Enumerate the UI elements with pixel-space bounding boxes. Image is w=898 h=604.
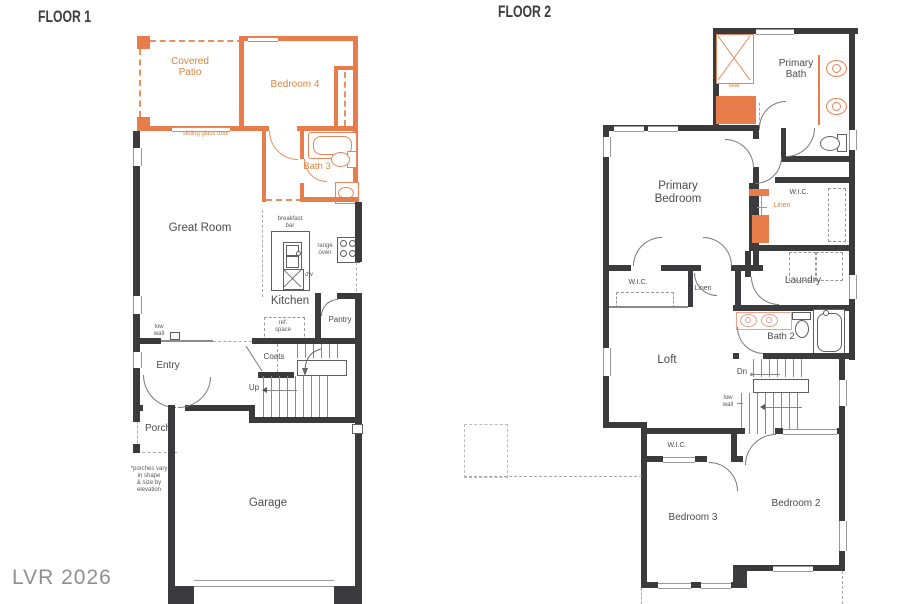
up-arrow-icon bbox=[267, 390, 297, 391]
window-icon bbox=[133, 352, 142, 368]
window-icon bbox=[839, 521, 847, 551]
wall bbox=[733, 353, 739, 359]
dishwasher-label: dw bbox=[301, 272, 317, 279]
low-wall-icon bbox=[170, 332, 180, 340]
washer-icon bbox=[789, 252, 816, 281]
low-wall-icon bbox=[737, 403, 743, 404]
burner-icon bbox=[340, 250, 347, 257]
door-arc bbox=[737, 327, 764, 354]
entry-label: Entry bbox=[146, 360, 190, 371]
faucet-icon bbox=[296, 251, 301, 256]
wall bbox=[603, 125, 609, 428]
window-icon bbox=[603, 137, 611, 157]
front-door-arc bbox=[143, 375, 176, 408]
closet-shelf-dashed bbox=[828, 188, 846, 242]
garage-service-door bbox=[352, 424, 363, 434]
opening-dashed bbox=[213, 341, 252, 342]
roof-outline-dashed bbox=[464, 424, 508, 478]
wic-hall-label: W.I.C. bbox=[618, 279, 658, 287]
stairs-treads bbox=[741, 393, 805, 434]
floor2-title: FLOOR 2 bbox=[498, 2, 551, 22]
closet-wall bbox=[334, 66, 338, 130]
door-arc bbox=[321, 299, 338, 316]
window-icon bbox=[648, 126, 678, 132]
bedroom3-label: Bedroom 3 bbox=[661, 512, 725, 523]
patio-dashed-wall bbox=[139, 49, 141, 117]
range-oven-label: range oven bbox=[313, 243, 337, 257]
wall bbox=[737, 456, 743, 462]
low-wall bbox=[161, 340, 213, 342]
garage-label: Garage bbox=[240, 497, 296, 510]
opening-dashed bbox=[356, 262, 357, 297]
wall bbox=[641, 428, 647, 588]
sink-icon bbox=[832, 64, 841, 73]
wic-primary-label: W.I.C. bbox=[778, 189, 820, 197]
breakfast-bar-label: breakfast bar bbox=[264, 216, 316, 230]
door-arc bbox=[786, 128, 815, 157]
low-wall bbox=[609, 306, 688, 308]
closet-rod bbox=[344, 72, 346, 126]
stairs-treads bbox=[263, 376, 327, 417]
door-arc bbox=[745, 434, 776, 465]
door-arc bbox=[694, 273, 717, 296]
window-icon bbox=[133, 296, 142, 314]
bath2-label: Bath 2 bbox=[757, 332, 805, 342]
door-arc bbox=[178, 377, 211, 408]
linen-primary-label: Linen bbox=[764, 202, 800, 210]
stairs-treads bbox=[753, 359, 805, 377]
window-icon bbox=[658, 583, 691, 589]
primary-bath-label: Primary Bath bbox=[766, 58, 826, 80]
railing-low-wall bbox=[783, 429, 837, 435]
sink-icon bbox=[766, 317, 772, 323]
wall bbox=[334, 586, 362, 604]
shower-seat-label: seat bbox=[716, 83, 752, 90]
door-arc bbox=[269, 131, 298, 160]
opening-dashed bbox=[266, 199, 302, 201]
wall bbox=[775, 428, 783, 434]
wall bbox=[661, 265, 701, 271]
faucet-icon bbox=[823, 310, 829, 316]
linen-shelf-block bbox=[749, 189, 769, 196]
patio-post bbox=[137, 36, 150, 49]
shower-seat-block bbox=[716, 96, 756, 124]
wall bbox=[300, 131, 304, 159]
door-arc bbox=[703, 237, 732, 266]
vanity-counter bbox=[818, 55, 820, 125]
wall bbox=[603, 265, 631, 271]
watermark: LVR 2026 bbox=[12, 566, 112, 590]
sink-icon bbox=[745, 317, 751, 323]
wall bbox=[353, 36, 358, 202]
door-arc bbox=[633, 237, 662, 266]
wall bbox=[337, 293, 362, 299]
roof-outline-dashed bbox=[464, 476, 642, 477]
wall bbox=[641, 428, 745, 434]
closet-opening bbox=[663, 457, 695, 463]
wall bbox=[168, 405, 175, 596]
sliding-glass-door-label: sliding glass door bbox=[166, 131, 246, 138]
stairs-up-label: Up bbox=[246, 384, 262, 393]
wall bbox=[297, 126, 358, 131]
wall bbox=[239, 36, 244, 131]
ref-space-label: ref. space bbox=[266, 320, 300, 334]
toilet-icon bbox=[792, 312, 811, 320]
window-icon bbox=[614, 126, 644, 132]
porch-post bbox=[133, 411, 140, 422]
sink-icon bbox=[286, 256, 299, 268]
primary-bedroom-label: Primary Bedroom bbox=[638, 180, 718, 205]
covered-patio-label: Covered Patio bbox=[158, 56, 222, 78]
bedroom2-label: Bedroom 2 bbox=[763, 498, 829, 509]
shower-icon bbox=[716, 34, 754, 84]
floorplan-canvas: FLOOR 1 Covered Patio sliding glass door… bbox=[0, 0, 898, 604]
low-wall-label: low wall bbox=[717, 395, 739, 409]
window-icon bbox=[849, 130, 857, 150]
wall bbox=[641, 456, 663, 462]
dryer-icon bbox=[816, 252, 843, 281]
window-icon bbox=[756, 29, 794, 35]
wic-bedroom3-label: W.I.C. bbox=[655, 442, 699, 450]
stairs-arrow-icon bbox=[760, 404, 765, 410]
stairs-arrow-icon bbox=[766, 407, 802, 408]
tub-icon bbox=[817, 313, 842, 352]
kitchen-label: Kitchen bbox=[265, 295, 315, 308]
wall bbox=[745, 251, 751, 277]
door-arc bbox=[759, 101, 786, 128]
wall bbox=[185, 405, 252, 411]
low-wall-label: low wall bbox=[148, 324, 170, 338]
wall bbox=[753, 131, 759, 139]
roof-outline-dashed bbox=[641, 588, 642, 604]
wall bbox=[837, 428, 845, 434]
wall bbox=[252, 417, 362, 423]
wall bbox=[691, 582, 701, 588]
wall bbox=[355, 202, 362, 262]
window-icon bbox=[701, 583, 731, 589]
roof-outline-dashed bbox=[842, 571, 843, 604]
bedroom4-label: Bedroom 4 bbox=[255, 79, 335, 90]
open-boundary-dashed bbox=[262, 210, 263, 297]
stairs-railing bbox=[297, 360, 347, 376]
wall bbox=[731, 582, 745, 588]
wall bbox=[749, 245, 855, 251]
linen-shelf-block bbox=[761, 196, 762, 215]
door-arc bbox=[725, 139, 754, 168]
stairs-treads bbox=[297, 344, 345, 358]
toilet-icon bbox=[820, 136, 840, 151]
wall bbox=[775, 177, 855, 183]
stairs-dn-label: Dn bbox=[733, 368, 751, 377]
linen-shelf-block bbox=[752, 215, 769, 243]
pantry-label: Pantry bbox=[320, 316, 360, 325]
sink-icon bbox=[832, 102, 841, 111]
window-icon bbox=[773, 566, 813, 572]
loft-label: Loft bbox=[642, 354, 692, 367]
window-icon bbox=[248, 37, 278, 42]
garage-door-icon bbox=[194, 580, 334, 587]
great-room-label: Great Room bbox=[160, 222, 240, 235]
window-icon bbox=[603, 348, 611, 376]
burner-icon bbox=[340, 240, 347, 247]
porch-post bbox=[133, 444, 140, 453]
wall bbox=[168, 586, 194, 604]
stairs-railing bbox=[327, 376, 328, 417]
stairs-railing bbox=[753, 379, 809, 393]
wall bbox=[302, 197, 358, 202]
patio-dashed-wall bbox=[150, 40, 243, 42]
window-icon bbox=[849, 275, 857, 299]
coats-label: Coats bbox=[256, 353, 292, 362]
wall bbox=[262, 131, 266, 202]
wall bbox=[781, 156, 855, 162]
window-icon bbox=[839, 380, 847, 406]
wall bbox=[695, 456, 707, 462]
wall bbox=[641, 582, 658, 588]
door-arc bbox=[709, 462, 738, 491]
bath3-label: Bath 3 bbox=[296, 162, 338, 172]
linen-arrow-icon bbox=[757, 207, 767, 208]
window-icon bbox=[133, 148, 142, 166]
floor1-title: FLOOR 1 bbox=[38, 7, 91, 27]
